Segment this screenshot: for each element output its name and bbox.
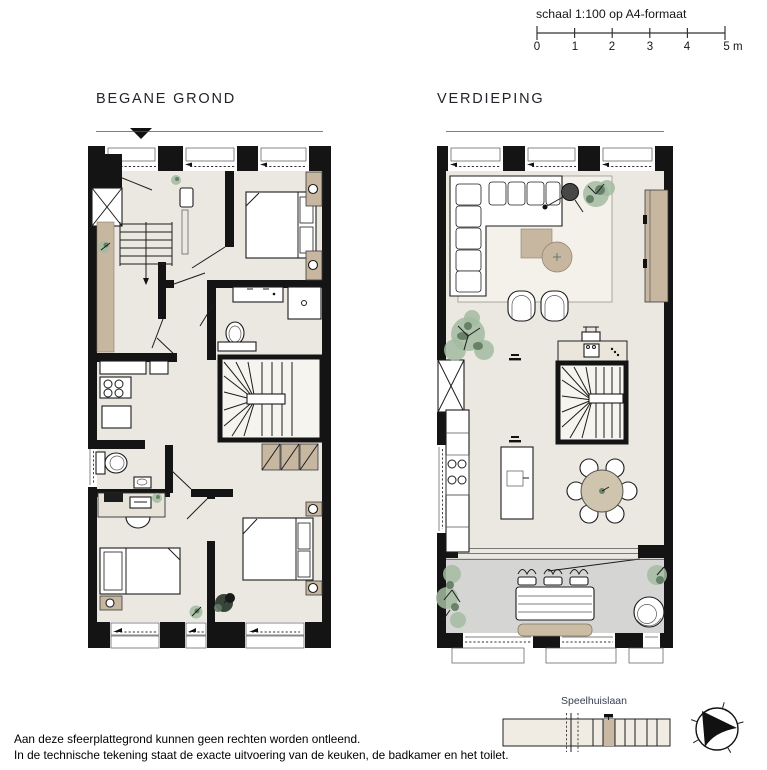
outdoor-table (516, 587, 594, 620)
stool (309, 261, 318, 270)
sideboard (643, 190, 668, 302)
railing-glass (643, 633, 660, 648)
shaft (92, 154, 122, 226)
entrance-arrow-icon (130, 128, 152, 139)
lamp (309, 584, 318, 593)
top-facade (437, 132, 673, 172)
stool (309, 185, 318, 194)
window (600, 146, 655, 171)
floorplan-drawing (0, 0, 767, 770)
scale-bar (537, 26, 725, 40)
bedroom-2-bed (100, 548, 180, 594)
bottom-facade (88, 622, 331, 648)
site-diagram (503, 713, 670, 752)
kitchen-island (501, 447, 533, 519)
bedroom-1-bed (246, 192, 316, 258)
bench (518, 624, 592, 636)
window (245, 622, 305, 648)
floorplan-sheet: schaal 1:100 op A4-formaat 0 1 2 3 4 5 m… (0, 0, 767, 770)
plant (171, 175, 181, 185)
highlighted-unit (603, 719, 615, 746)
lamp (106, 599, 114, 607)
top-facade (88, 132, 331, 172)
window (258, 146, 309, 171)
wall-cabinet (180, 188, 193, 207)
toilet-icon (96, 452, 127, 474)
armchair (508, 291, 535, 321)
window (183, 146, 237, 171)
bedroom-3-bed (243, 518, 313, 580)
round-table (542, 242, 572, 272)
balcony-railing (437, 633, 673, 663)
lamp (309, 505, 318, 514)
lounge-chair (634, 597, 664, 627)
window (525, 146, 578, 171)
washing-machine-icon (100, 377, 131, 398)
window (110, 622, 160, 648)
plant (190, 606, 203, 619)
plant (98, 241, 110, 253)
shower (288, 287, 321, 319)
window (185, 622, 207, 648)
window (448, 146, 503, 171)
shaft (438, 360, 464, 412)
winder-stairs (220, 357, 322, 440)
winder-stairs (558, 363, 626, 442)
sink-counter (233, 287, 283, 302)
plan-verdieping (436, 132, 673, 664)
plan-begane-grond (88, 132, 331, 649)
kitchen-counter (446, 410, 469, 552)
armchair (541, 291, 568, 321)
wardrobe-units (262, 444, 318, 470)
side-window (437, 445, 446, 533)
sink-icon (134, 477, 151, 488)
north-arrow-icon (691, 702, 743, 753)
